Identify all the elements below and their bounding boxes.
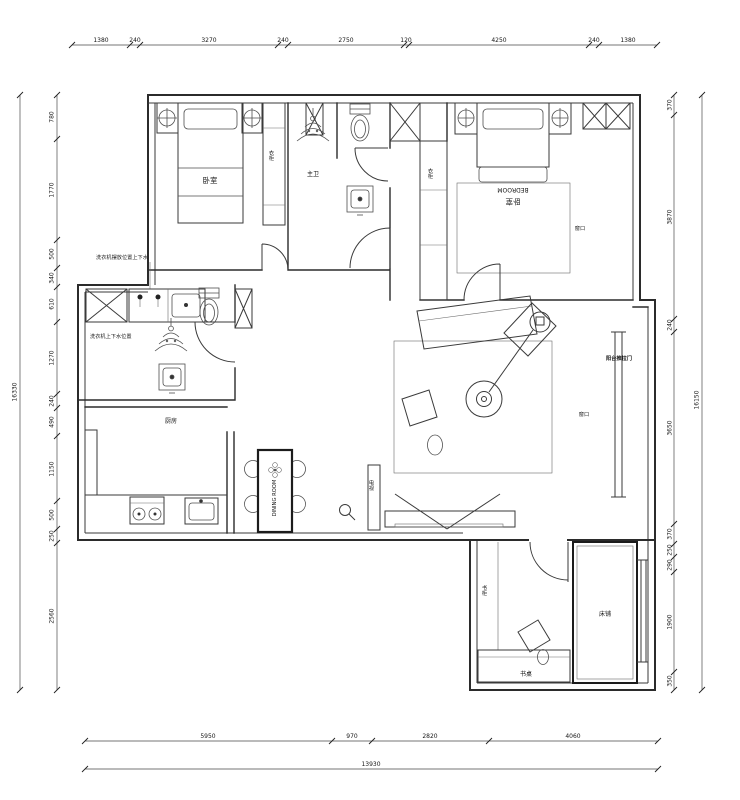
lounge-chair-icon	[402, 390, 443, 455]
nightstand-icon	[549, 103, 571, 134]
walls	[78, 95, 655, 690]
dim-right-4: 3650	[667, 420, 674, 435]
rug	[394, 341, 552, 473]
balcony-door-label: 阳台推拉门	[606, 354, 632, 362]
dim-right-5: 370	[667, 528, 674, 540]
bedroom1: 卧室 衣柜	[157, 103, 288, 270]
dining-area: DINING ROOM	[245, 450, 306, 532]
nightstand-icon	[242, 103, 262, 133]
dim-right-3: 240	[667, 319, 674, 331]
dim-top-8: 240	[588, 37, 600, 44]
dim-left-11: 250	[49, 530, 56, 542]
dim-bottom-total: 13930	[361, 761, 380, 768]
dining-label: DINING ROOM	[272, 480, 278, 517]
dim-right-total: 16150	[694, 390, 701, 409]
door-arc	[195, 322, 235, 362]
dim-right-8: 1900	[667, 614, 674, 629]
bed-icon	[178, 103, 243, 223]
kitchen: 厨房	[85, 417, 227, 524]
desk-label: 书桌	[520, 670, 532, 678]
dim-left-8: 490	[49, 416, 56, 428]
toilet-icon	[350, 104, 370, 141]
dim-right-2: 3870	[667, 209, 674, 224]
laundry-note-top: 洗衣机摆放位置上下水	[96, 253, 149, 261]
toilet-icon	[199, 288, 219, 325]
dim-right-1: 370	[667, 99, 674, 111]
nightstand-icon	[157, 103, 178, 133]
desk-chair-icon	[518, 620, 550, 665]
dim-left-3: 500	[49, 248, 56, 260]
dim-left-4: 340	[49, 272, 56, 284]
door-arc	[530, 542, 568, 582]
kitchen-label: 厨房	[165, 417, 177, 425]
bedroom1-label: 卧室	[203, 175, 218, 185]
dim-top-4: 240	[277, 37, 289, 44]
dim-left-7: 240	[49, 395, 56, 407]
wardrobe1-label: 衣柜	[268, 149, 274, 162]
sink-icon	[347, 186, 373, 215]
dim-top-2: 240	[129, 37, 141, 44]
window-icon	[637, 560, 648, 662]
laundry-note-side: 洗衣机上下水位置	[90, 332, 132, 340]
study-bed-label: 床铺	[599, 610, 611, 618]
dim-bottom-4: 4060	[565, 733, 580, 740]
dim-bottom-1: 5950	[200, 733, 215, 740]
wall-column-boxes	[86, 103, 630, 328]
dim-left-10: 500	[49, 509, 56, 521]
bedroom2: 衣柜 卧室 BEDROOM 窗口	[420, 103, 585, 300]
wardrobe-icon	[263, 103, 285, 225]
living-room: 电视 阳台推拉门 窗口	[340, 296, 632, 530]
laundry-bathroom: 洗衣机摆放位置上下水 洗衣机上下水位置	[90, 253, 235, 393]
hallway-door-arc	[350, 228, 390, 268]
floor-drain-icon	[340, 505, 356, 521]
dim-left-1: 780	[49, 111, 56, 123]
floor-lamp-icon	[489, 312, 550, 392]
dim-right-7: 290	[667, 559, 674, 571]
bedroom2-window-label: 窗口	[575, 224, 585, 232]
dim-bottom-2: 970	[346, 733, 358, 740]
study-room: 书柜 书桌 床铺	[478, 542, 648, 683]
dim-top-1: 1380	[93, 37, 108, 44]
door-arc	[355, 148, 388, 181]
dim-top-6: 120	[400, 37, 412, 44]
rug	[457, 183, 570, 273]
sink-icon	[159, 364, 185, 393]
bedroom2-labels: 卧室 BEDROOM	[497, 186, 528, 207]
shower-icon	[297, 108, 329, 141]
door-arc	[262, 244, 288, 270]
bath-master-label: 主卫	[307, 170, 319, 178]
dim-left-9: 1150	[49, 461, 56, 476]
bedroom2-label-cn: 卧室	[505, 197, 520, 207]
bookcase-label: 书柜	[481, 584, 487, 597]
dim-left-6: 1270	[49, 350, 56, 365]
shower-icon	[155, 318, 187, 351]
dim-top-5: 2750	[338, 37, 353, 44]
stove-icon	[130, 497, 164, 524]
nightstand-icon	[455, 103, 477, 134]
door-arc	[464, 264, 500, 300]
dim-right-6: 250	[667, 544, 674, 556]
tv-cabinet-icon	[385, 494, 515, 529]
floor-plan-canvas: 1380 240 3270 240 2750 120 4250 240 1380…	[0, 0, 740, 800]
living-window-label: 窗口	[579, 410, 589, 418]
dim-left-total: 16330	[12, 382, 19, 401]
dim-left-5: 610	[49, 298, 56, 310]
tall-cabinet	[85, 430, 97, 495]
tv-label: 电视	[368, 479, 374, 492]
ceiling-fan-icon	[466, 381, 502, 417]
washing-machine-icon	[129, 289, 205, 322]
bed-icon	[477, 103, 549, 182]
dim-right-9: 350	[667, 675, 674, 687]
dim-top-7: 4250	[491, 37, 506, 44]
media-column	[368, 465, 380, 530]
kitchen-sink-icon	[185, 498, 218, 524]
dim-left-12: 2560	[49, 608, 56, 623]
dim-top-9: 1380	[620, 37, 635, 44]
dim-left-2: 1770	[49, 182, 56, 197]
wardrobe2-label: 衣柜	[427, 167, 433, 180]
floor-plan-drawing: 1380 240 3270 240 2750 120 4250 240 1380…	[0, 0, 740, 800]
sofa-icon	[417, 296, 556, 356]
bedroom2-label-en: BEDROOM	[497, 186, 528, 193]
dim-top-3: 3270	[201, 37, 216, 44]
dim-bottom-3: 2820	[422, 733, 437, 740]
wardrobe-icon	[420, 141, 447, 300]
bathroom-master: 主卫	[297, 104, 388, 215]
